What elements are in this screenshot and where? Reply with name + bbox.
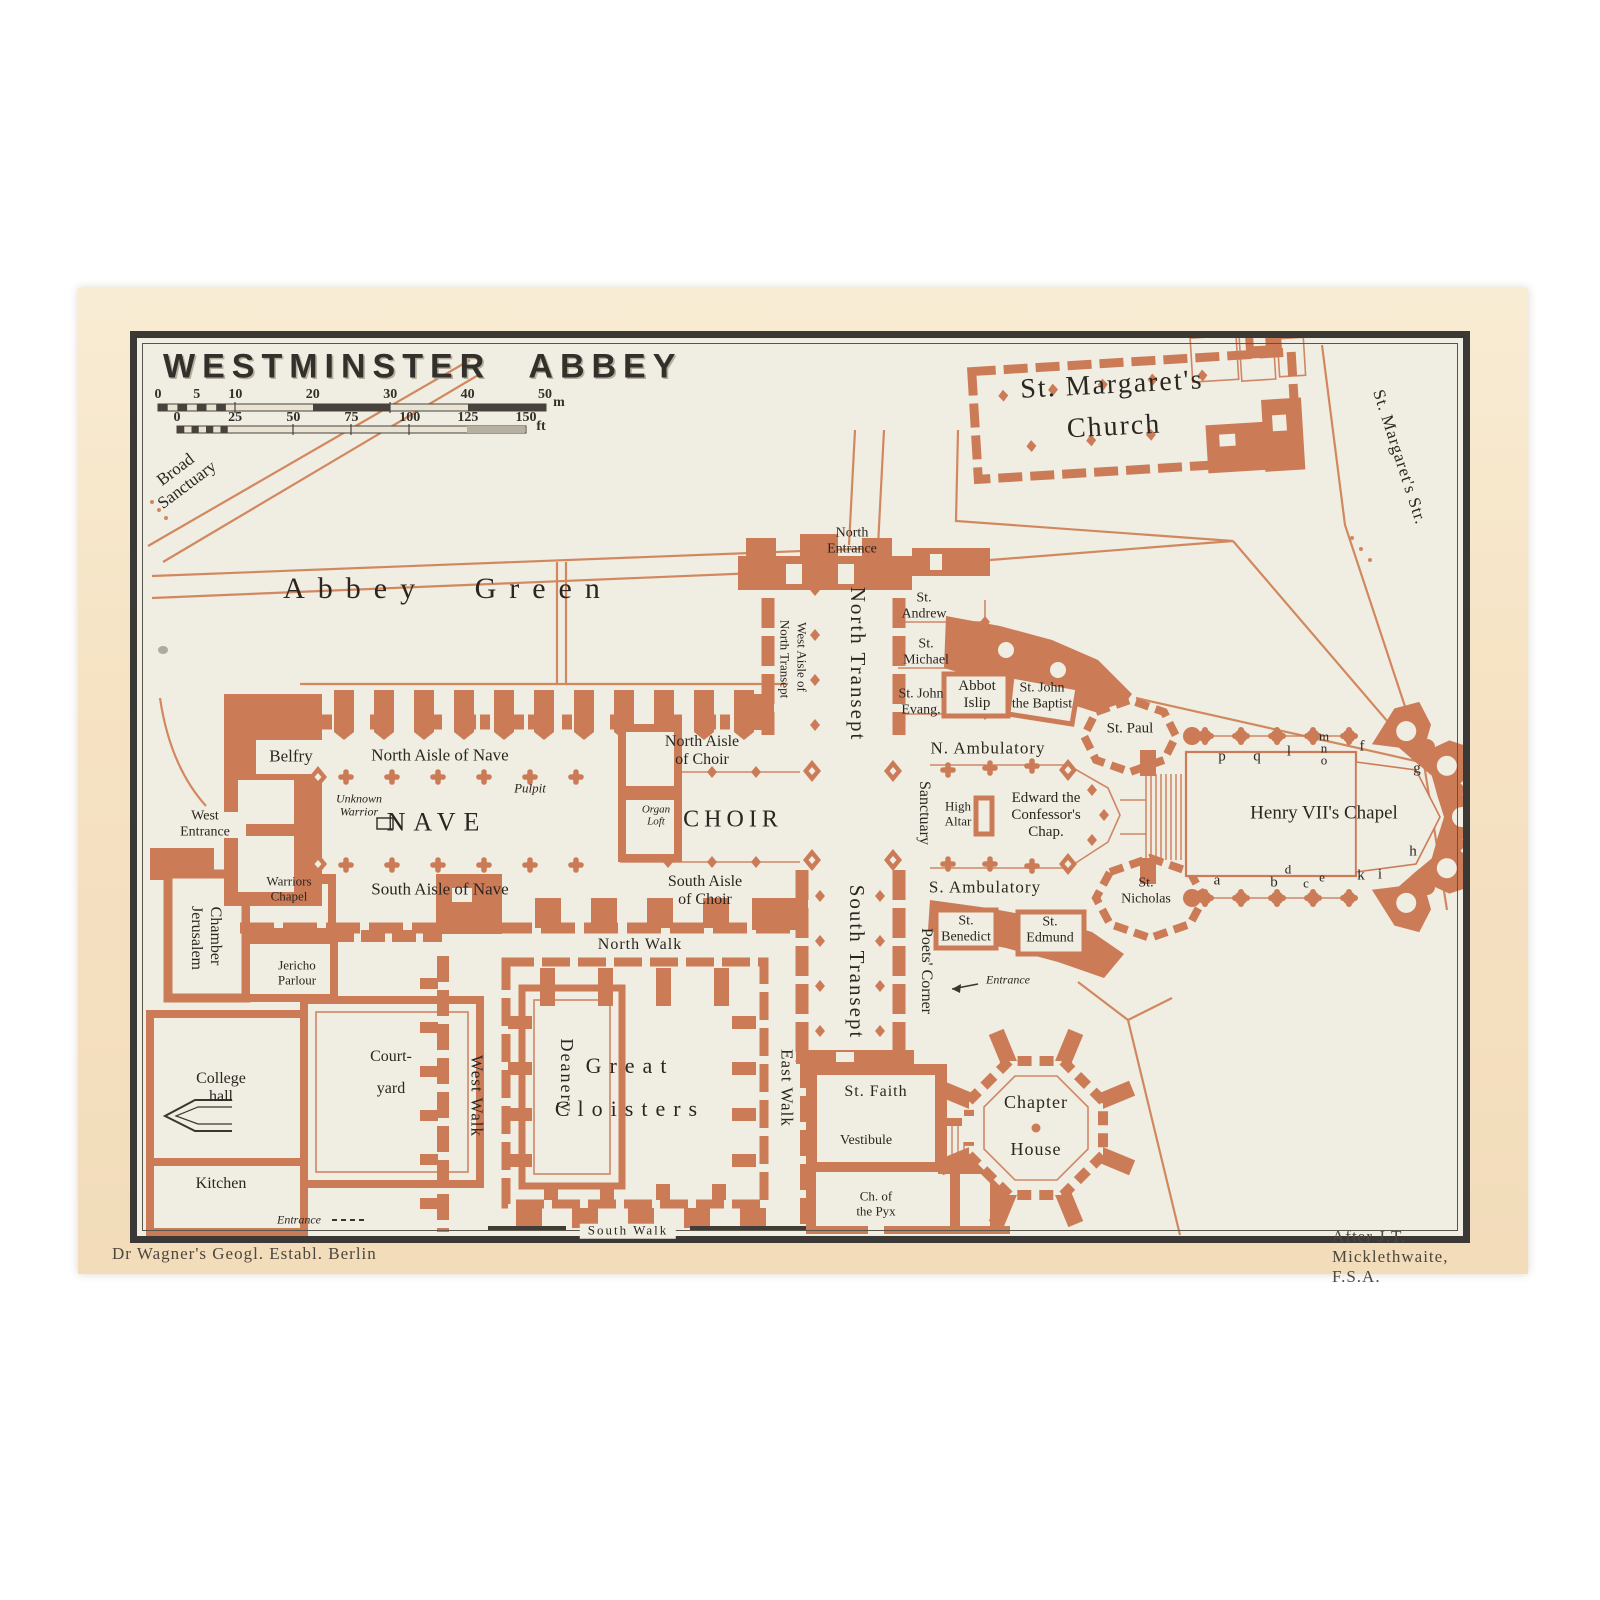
st-margarets-church-plan — [970, 338, 1311, 489]
westminster-abbey-map-page: WESTMINSTER ABBEY Dr Wagner's Geogl. Est… — [0, 0, 1600, 1600]
henry-vii-chapel-plan — [1140, 691, 1463, 942]
map-field — [137, 338, 1463, 1236]
nave-plan — [218, 690, 774, 906]
north-ambulatory-chapels — [944, 616, 1176, 772]
south-transept-plan — [752, 870, 914, 1064]
choir-plan — [620, 728, 902, 871]
south-ambulatory-chapels — [928, 858, 1204, 993]
chapter-house-plan — [937, 1029, 1135, 1227]
sanctuary-plan — [930, 758, 1146, 875]
floor-plan-drawing — [137, 338, 1463, 1236]
